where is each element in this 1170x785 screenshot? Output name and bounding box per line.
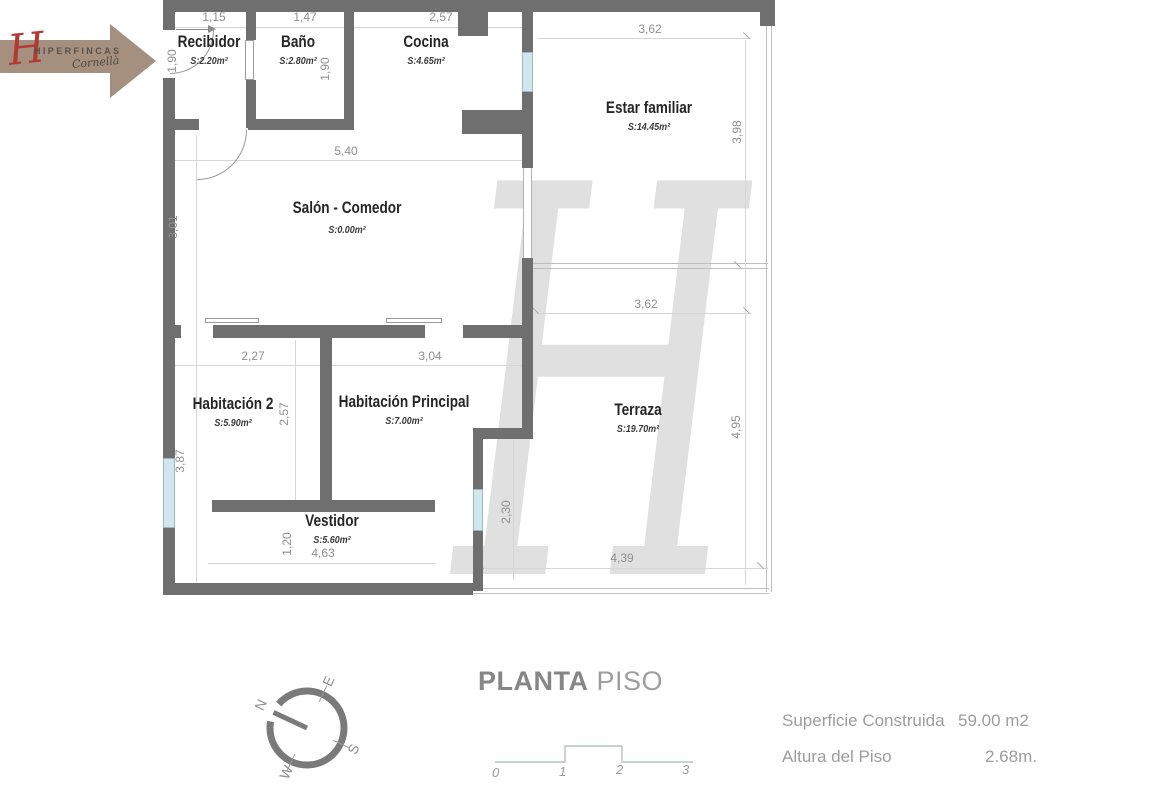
room-label-hab2: Habitación 2 S:5.90m²: [153, 394, 313, 429]
dim-label-terraza-left-height: 2,30: [499, 482, 513, 542]
railing-line: [533, 268, 768, 269]
wall: [213, 325, 425, 338]
dimension-line: [170, 365, 522, 366]
compass-label-s: S: [344, 741, 362, 756]
room-label-vestidor: Vestidor S:5.60m²: [252, 511, 412, 546]
dimension-line: [535, 313, 751, 314]
compass-label-n: N: [255, 697, 270, 713]
sliding-door-panel: [205, 318, 259, 323]
wall: [473, 439, 483, 489]
dimension-line: [208, 563, 436, 564]
wall: [163, 583, 473, 595]
compass-rose: N E S W: [255, 676, 365, 785]
info-superficie-row: Superficie Construida 59.00 m2: [782, 711, 1029, 731]
entry-direction-arrow-icon: [176, 29, 212, 30]
wall: [462, 110, 524, 134]
scale-tick-2: 2: [616, 762, 623, 777]
info-superficie-label: Superficie Construida: [782, 711, 958, 731]
plan-title-bold: PLANTA: [478, 666, 589, 696]
window: [473, 489, 483, 531]
wall: [248, 119, 354, 130]
room-label-salon: Salón - Comedor S:0.00m²: [267, 198, 427, 236]
dimension-line: [745, 40, 746, 585]
dim-label-terraza-height: 4,95: [729, 397, 743, 457]
wall: [344, 12, 354, 130]
wall: [522, 92, 533, 168]
wall: [163, 325, 181, 338]
dim-label-vestidor-width: 4,63: [293, 546, 353, 560]
scale-tick-3: 3: [682, 762, 689, 777]
dim-label-bano-width: 1,47: [275, 10, 335, 24]
dim-label-habp-width: 3,04: [400, 349, 460, 363]
scale-bar: 0 1 2 3: [488, 735, 703, 783]
scale-tick-1: 1: [559, 764, 566, 779]
railing-line: [473, 593, 769, 594]
dim-label-estar-width: 3,62: [620, 22, 680, 36]
info-altura-row: Altura del Piso 2.68m.: [782, 747, 1037, 767]
dim-label-left-lower-height: 3,87: [173, 431, 187, 491]
window: [522, 52, 533, 92]
terrace-glass-door: [523, 168, 532, 258]
railing-line: [766, 12, 767, 592]
dim-label-cocina-width: 2,57: [411, 10, 471, 24]
dim-label-recibidor-width: 1,15: [184, 10, 244, 24]
dimension-line: [513, 440, 514, 580]
wall: [163, 119, 199, 130]
dim-label-salon-width: 5,40: [316, 144, 376, 158]
room-label-estar: Estar familiar S:14.45m²: [569, 98, 729, 133]
plan-title-light: PISO: [597, 666, 664, 696]
wall: [760, 12, 775, 26]
wall: [163, 0, 175, 30]
compass-needle: [274, 712, 308, 728]
railing-line: [533, 263, 768, 264]
sliding-door-panel: [386, 318, 442, 323]
dim-label-terraza-bottom-width: 4,39: [592, 551, 652, 565]
room-label-habp: Habitación Principal S:7.00m²: [319, 392, 489, 427]
railing-line: [771, 12, 772, 592]
railing-line: [473, 588, 769, 589]
dimension-line: [537, 38, 751, 39]
compass-label-e: E: [319, 676, 337, 689]
wall: [522, 258, 533, 438]
scale-bar-line: [488, 735, 703, 769]
dim-label-estar-height: 3,98: [730, 102, 744, 162]
wall: [463, 325, 522, 338]
wall: [473, 428, 533, 439]
plan-title: PLANTA PISO: [478, 666, 663, 697]
wall: [522, 12, 533, 52]
wall: [473, 531, 483, 591]
info-altura-value: 2.68m.: [958, 747, 1037, 767]
floor-plan-page: H HIPERFINCAS Cornellà H: [0, 0, 1170, 785]
info-superficie-value: 59.00 m2: [958, 711, 1029, 731]
info-altura-label: Altura del Piso: [782, 747, 958, 767]
room-label-cocina: Cocina S:4.65m²: [346, 32, 506, 67]
scale-tick-0: 0: [492, 765, 499, 780]
dim-label-salon-height: 3,01: [166, 197, 180, 257]
room-label-terraza: Terraza S:19.70m²: [558, 400, 718, 435]
dimension-line: [478, 568, 768, 569]
watermark-letter: H: [455, 118, 747, 658]
dimension-line: [196, 135, 197, 583]
salon-door-arc: [197, 130, 247, 180]
dim-label-terraza-width: 3,62: [616, 297, 676, 311]
dim-label-hab2-width: 2,27: [223, 349, 283, 363]
